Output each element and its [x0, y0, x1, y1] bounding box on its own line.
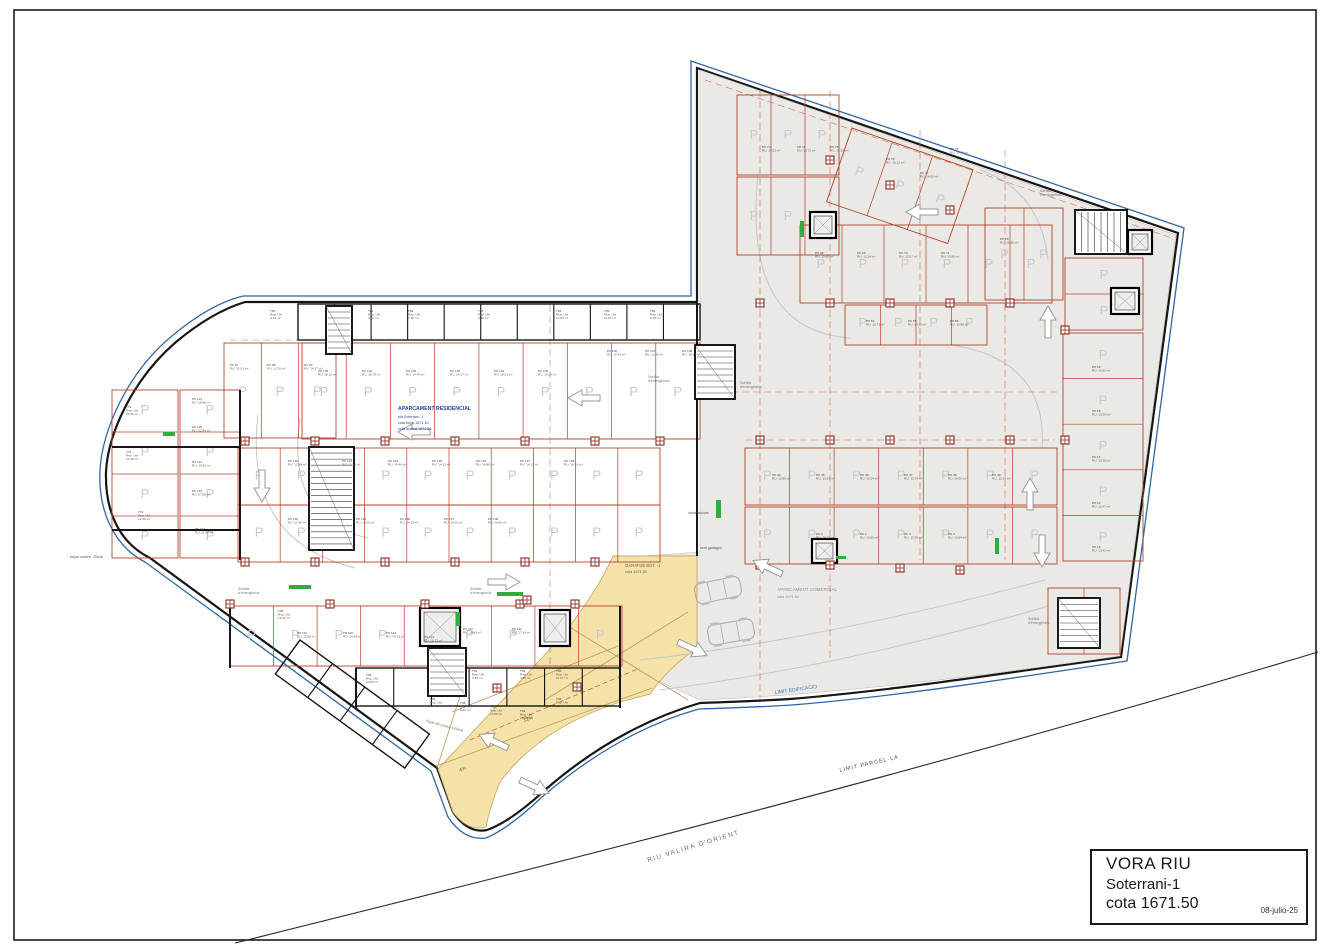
- garatge-title: GARATGE BOT. -1: [625, 563, 661, 568]
- structural-column: [571, 600, 579, 608]
- structural-column: [826, 561, 834, 569]
- elevator: [812, 539, 837, 563]
- parking-p-glyph: P: [508, 467, 517, 482]
- parking-p-glyph: P: [408, 384, 417, 399]
- parking-p-glyph: P: [276, 383, 285, 398]
- parking-p-glyph: P: [986, 526, 995, 541]
- parking-p-glyph: P: [550, 467, 559, 482]
- parking-p-glyph: P: [1100, 303, 1109, 318]
- parcel-limit-label: LIMIT PARCEL·LA: [839, 754, 899, 773]
- structural-column: [886, 181, 894, 189]
- structural-column: [656, 437, 664, 445]
- staircase: [695, 345, 735, 399]
- structural-column: [1061, 436, 1069, 444]
- exit-door-marker: [800, 221, 804, 237]
- drawing-date: 08-julio-25: [1261, 906, 1298, 915]
- exit-door-marker: [497, 592, 523, 596]
- elevator: [810, 212, 836, 238]
- level-title: Soterrani-1: [1106, 876, 1306, 893]
- parking-p-glyph: P: [929, 315, 938, 330]
- parking-p-glyph: P: [424, 467, 433, 482]
- parking-p-glyph: P: [335, 627, 344, 642]
- parking-p-glyph: P: [141, 402, 150, 417]
- structural-column: [826, 156, 834, 164]
- title-block: VORA RIU Soterrani-1 cota 1671.50 08-jul…: [1090, 849, 1308, 925]
- parking-p-glyph: P: [550, 524, 559, 539]
- stall-label: PK 78RU: 15.88 m²: [950, 147, 968, 154]
- structural-column: [756, 436, 764, 444]
- structural-column: [886, 436, 894, 444]
- parking-p-glyph: P: [818, 127, 827, 142]
- structural-column: [451, 437, 459, 445]
- structural-column: [493, 684, 501, 692]
- structural-column: [451, 558, 459, 566]
- parking-p-glyph: P: [424, 524, 433, 539]
- parking-p-glyph: P: [1099, 392, 1108, 407]
- parking-p-glyph: P: [255, 524, 264, 539]
- structural-column: [896, 564, 904, 572]
- emergency-exit-label: Sortidad'emergència: [1040, 189, 1061, 197]
- parking-p-glyph: P: [497, 384, 506, 399]
- parking-p-glyph: P: [466, 467, 475, 482]
- parking-p-glyph: P: [141, 486, 150, 501]
- structural-column: [946, 299, 954, 307]
- exit-door-marker: [716, 500, 721, 518]
- garatge-sub: cota 1671.50: [625, 570, 647, 574]
- structural-column: [381, 558, 389, 566]
- parking-p-glyph: P: [674, 384, 683, 399]
- parking-p-glyph: P: [452, 384, 461, 399]
- parking-p-glyph: P: [1000, 247, 1009, 262]
- parking-p-glyph: P: [784, 127, 793, 142]
- structural-column: [573, 683, 581, 691]
- residencial-title: APARCAMENT RESIDENCIAL: [398, 406, 472, 412]
- parking-p-glyph: P: [381, 467, 390, 482]
- structural-column: [946, 206, 954, 214]
- comercial-title: APARCAMENT COMERCIAL: [777, 587, 838, 592]
- project-title: VORA RIU: [1106, 854, 1306, 874]
- parking-p-glyph: P: [1099, 484, 1108, 499]
- river-label: RIU VALIRA D'ORIENT: [647, 829, 741, 864]
- zones-layer: [100, 61, 1184, 838]
- drawing-sheet: PPPPPPPPPPPPPPPPPPPPPPPPPPPPPPPPPPPPPPPP…: [0, 0, 1330, 950]
- structural-column: [521, 558, 529, 566]
- comercial-sub: cota 1671.50: [777, 595, 799, 599]
- structural-column: [591, 437, 599, 445]
- parking-p-glyph: P: [750, 208, 759, 223]
- structural-column: [523, 596, 531, 604]
- structural-column: [886, 299, 894, 307]
- structural-column: [956, 566, 964, 574]
- parking-p-glyph: P: [1099, 438, 1108, 453]
- parking-p-glyph: P: [297, 524, 306, 539]
- staircase: [428, 648, 466, 696]
- structural-column: [326, 600, 334, 608]
- structural-column: [1061, 326, 1069, 334]
- elevator: [540, 610, 570, 646]
- parking-p-glyph: P: [1027, 256, 1036, 271]
- parking-p-glyph: P: [763, 526, 772, 541]
- structural-column: [826, 436, 834, 444]
- structural-column: [946, 436, 954, 444]
- elevator: [1128, 230, 1152, 254]
- garage-vent-label: vent garatges: [700, 546, 722, 550]
- parking-p-glyph: P: [1099, 529, 1108, 544]
- staircase: [326, 306, 352, 354]
- parking-p-glyph: P: [541, 384, 550, 399]
- structural-column: [311, 558, 319, 566]
- residencial-sub1: pla Soterrani -1: [398, 415, 423, 419]
- parking-p-glyph: P: [629, 384, 638, 399]
- structural-column: [381, 437, 389, 445]
- structural-column: [1006, 436, 1014, 444]
- parking-p-glyph: P: [592, 467, 601, 482]
- exit-door-marker: [289, 585, 311, 589]
- structural-column: [421, 600, 429, 608]
- parking-p-glyph: P: [1030, 526, 1039, 541]
- parking-p-glyph: P: [508, 524, 517, 539]
- structural-column: [756, 299, 764, 307]
- structural-column: [826, 299, 834, 307]
- parking-p-glyph: P: [635, 467, 644, 482]
- parking-p-glyph: P: [592, 524, 601, 539]
- parking-p-glyph: P: [1100, 267, 1109, 282]
- parking-p-glyph: P: [635, 524, 644, 539]
- parking-p-glyph: P: [320, 384, 329, 399]
- parking-p-glyph: P: [381, 524, 390, 539]
- exit-door-marker: [163, 432, 175, 436]
- exit-door-marker: [456, 612, 460, 626]
- structural-column: [521, 437, 529, 445]
- structural-column: [226, 600, 234, 608]
- parking-p-glyph: P: [596, 627, 605, 642]
- parking-p-glyph: P: [1099, 347, 1108, 362]
- structural-column: [241, 558, 249, 566]
- structural-column: [591, 558, 599, 566]
- parking-p-glyph: P: [894, 315, 903, 330]
- parking-p-glyph: P: [466, 524, 475, 539]
- staircase: [1058, 598, 1100, 648]
- parking-p-glyph: P: [1039, 247, 1048, 262]
- parking-p-glyph: P: [364, 384, 373, 399]
- structural-column: [241, 437, 249, 445]
- parking-p-glyph: P: [247, 627, 256, 642]
- installations-label: instal·lacions: [688, 511, 709, 515]
- parking-p-glyph: P: [784, 208, 793, 223]
- exit-door-marker: [836, 556, 846, 559]
- parking-p-glyph: P: [750, 127, 759, 142]
- slab-note-label: forjat sostre -30cm: [70, 554, 104, 559]
- parking-p-glyph: P: [985, 256, 994, 271]
- residencial-sub2: cota forjat 1671.40: [398, 421, 429, 425]
- structural-column: [1006, 299, 1014, 307]
- parking-p-glyph: P: [297, 467, 306, 482]
- parking-p-glyph: P: [808, 467, 817, 482]
- floor-plan-canvas: PPPPPPPPPPPPPPPPPPPPPPPPPPPPPPPPPPPPPPPP…: [0, 0, 1330, 950]
- residencial-sub3: cota acabat 1671.50: [398, 427, 431, 431]
- exit-door-marker: [995, 538, 999, 554]
- parking-p-glyph: P: [763, 467, 772, 482]
- structural-column: [311, 437, 319, 445]
- staircase: [1075, 210, 1127, 254]
- elevator: [1111, 288, 1139, 314]
